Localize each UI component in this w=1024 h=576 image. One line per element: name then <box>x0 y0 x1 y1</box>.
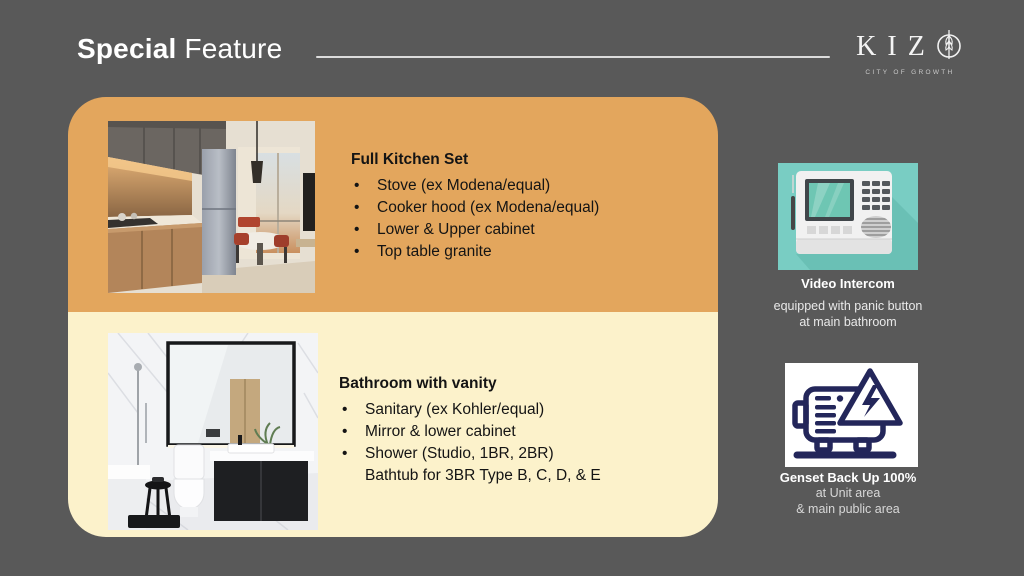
bathroom-feature-text: Bathroom with vanity Sanitary (ex Kohler… <box>339 374 718 487</box>
kitchen-section: Full Kitchen Set Stove (ex Modena/equal)… <box>68 97 718 312</box>
slide: Special Feature KIZ CITY OF GROWTH <box>0 0 1024 576</box>
logo-wordmark: KIZ <box>856 26 964 68</box>
title-divider-line <box>316 56 830 58</box>
bathroom-photo <box>108 333 318 530</box>
genset-description: at Unit area & main public area <box>743 486 953 517</box>
intercom-title: Video Intercom <box>743 276 953 291</box>
genset-panel <box>785 363 918 467</box>
genset-title: Genset Back Up 100% <box>743 470 953 485</box>
bathroom-section: Bathroom with vanity Sanitary (ex Kohler… <box>68 312 718 537</box>
kitchen-photo <box>108 121 315 293</box>
intercom-panel <box>778 163 918 270</box>
logo-tagline: CITY OF GROWTH <box>865 69 954 76</box>
kitchen-bullet-list: Stove (ex Modena/equal) Cooker hood (ex … <box>351 175 711 263</box>
bathroom-heading: Bathroom with vanity <box>339 374 718 394</box>
list-item: Sanitary (ex Kohler/equal) <box>339 399 718 421</box>
bathroom-bullet-list: Sanitary (ex Kohler/equal) Mirror & lowe… <box>339 399 718 465</box>
intercom-description: equipped with panic button at main bathr… <box>743 299 953 330</box>
logo-letters: KIZ <box>856 29 936 65</box>
page-title-bold: Special <box>77 33 176 64</box>
list-item: Top table granite <box>351 241 711 263</box>
features-card: Full Kitchen Set Stove (ex Modena/equal)… <box>68 97 718 537</box>
kitchen-feature-text: Full Kitchen Set Stove (ex Modena/equal)… <box>351 150 711 263</box>
wheat-circle-icon <box>934 27 964 68</box>
kizo-logo: KIZ CITY OF GROWTH <box>851 26 969 76</box>
genset-desc-line1: at Unit area <box>743 486 953 502</box>
page-title: Special Feature <box>77 33 282 65</box>
genset-desc-line2: & main public area <box>743 502 953 518</box>
page-title-regular: Feature <box>176 33 282 64</box>
bathroom-continuation: Bathtub for 3BR Type B, C, D, & E <box>339 465 718 487</box>
list-item: Shower (Studio, 1BR, 2BR) <box>339 443 718 465</box>
list-item: Cooker hood (ex Modena/equal) <box>351 197 711 219</box>
list-item: Stove (ex Modena/equal) <box>351 175 711 197</box>
genset-icon <box>785 363 918 467</box>
kitchen-heading: Full Kitchen Set <box>351 150 711 170</box>
intercom-desc-line1: equipped with panic button <box>743 299 953 315</box>
intercom-desc-line2: at main bathroom <box>743 315 953 331</box>
list-item: Lower & Upper cabinet <box>351 219 711 241</box>
list-item: Mirror & lower cabinet <box>339 421 718 443</box>
video-intercom-icon <box>778 163 918 270</box>
